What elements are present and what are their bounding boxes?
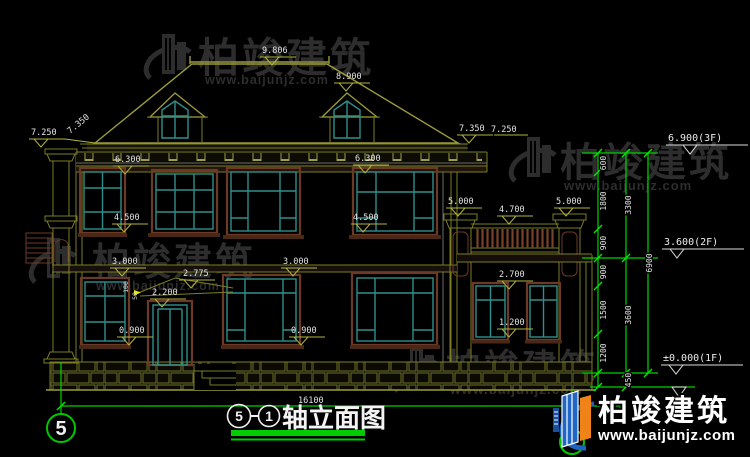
dim-sill2-right: 4.500 (353, 213, 379, 223)
chain-900a: 900 (599, 236, 608, 251)
chain-1800: 1800 (599, 191, 608, 210)
logo-url: www.baijunjz.com (597, 427, 735, 444)
chain-1500: 1500 (599, 300, 608, 319)
level-2f-label: 3.600(2F) (664, 237, 718, 248)
stone-base (46, 362, 596, 390)
chain-900b: 900 (599, 265, 608, 280)
annex-slab (457, 254, 592, 262)
watermark-url: www.baijunjz.com (563, 178, 692, 193)
title-underline-thick (231, 430, 365, 436)
dim-railing-top: 4.700 (499, 205, 525, 215)
brand-logo: 柏竣建筑 www.baijunjz.com (553, 391, 735, 448)
dim-annex-head: 2.700 (499, 270, 525, 280)
dim-cornice-left: 6.300 (115, 155, 141, 165)
dim-sill2-left: 4.500 (114, 213, 140, 223)
chain-600: 600 (599, 156, 608, 171)
level-3f-label: 6.900(3F) (668, 133, 722, 144)
dim-ridge: 9.806 (262, 46, 288, 56)
dim-canopy-a: 100 (122, 281, 130, 293)
chain-6900: 6900 (645, 253, 654, 272)
logo-building-blue (562, 391, 578, 447)
dim-canopy-peak: 2.775 (183, 269, 209, 279)
dim-cornice-right: 6.300 (355, 154, 381, 164)
title-text: 轴立面图 (282, 403, 386, 433)
dim-sill1-left: 0.900 (119, 326, 145, 336)
watermark-url: www.baijunjz.com (204, 73, 329, 87)
chain-450: 450 (624, 373, 633, 388)
level-1f-label: ±0.000(1F) (663, 353, 723, 364)
dim-pier-right: 5.000 (556, 197, 582, 207)
axis-number: 5 (55, 418, 66, 440)
dim-door-head: 2.200 (152, 288, 178, 298)
window (525, 283, 562, 344)
chain-3600: 3600 (624, 305, 633, 324)
entry-steps (194, 364, 236, 390)
dim-eave-right: 7.250 (491, 125, 517, 135)
dim-floor2-left: 3.000 (112, 257, 138, 267)
chain-3300: 3300 (624, 195, 633, 214)
logo-brand: 柏竣建筑 (598, 394, 730, 428)
ac-louver-box (26, 233, 52, 263)
elevation-svg: 柏竣建筑 www.baijunjz.com 柏竣建筑 www.baijunjz.… (0, 0, 750, 457)
title-axis-right: 1 (265, 408, 273, 424)
title-axis-left: 5 (235, 408, 243, 424)
chain-1200: 1200 (599, 343, 608, 362)
dim-dormer-peak: 8.900 (336, 72, 362, 82)
dim-annex-sill: 1.200 (499, 318, 525, 328)
dim-floor2-right: 3.000 (283, 257, 309, 267)
dim-canopy-b: 50 (131, 292, 139, 300)
dim-eave-left: 7.250 (31, 128, 57, 138)
logo-building-orange (580, 395, 591, 441)
dim-pier-left: 5.000 (448, 197, 474, 207)
cad-drawing-canvas: 柏竣建筑 www.baijunjz.com 柏竣建筑 www.baijunjz.… (0, 0, 750, 457)
dim-sill1-right: 0.900 (291, 326, 317, 336)
terrace-railing (471, 224, 559, 252)
dim-slope-right: 7.350 (459, 124, 485, 134)
